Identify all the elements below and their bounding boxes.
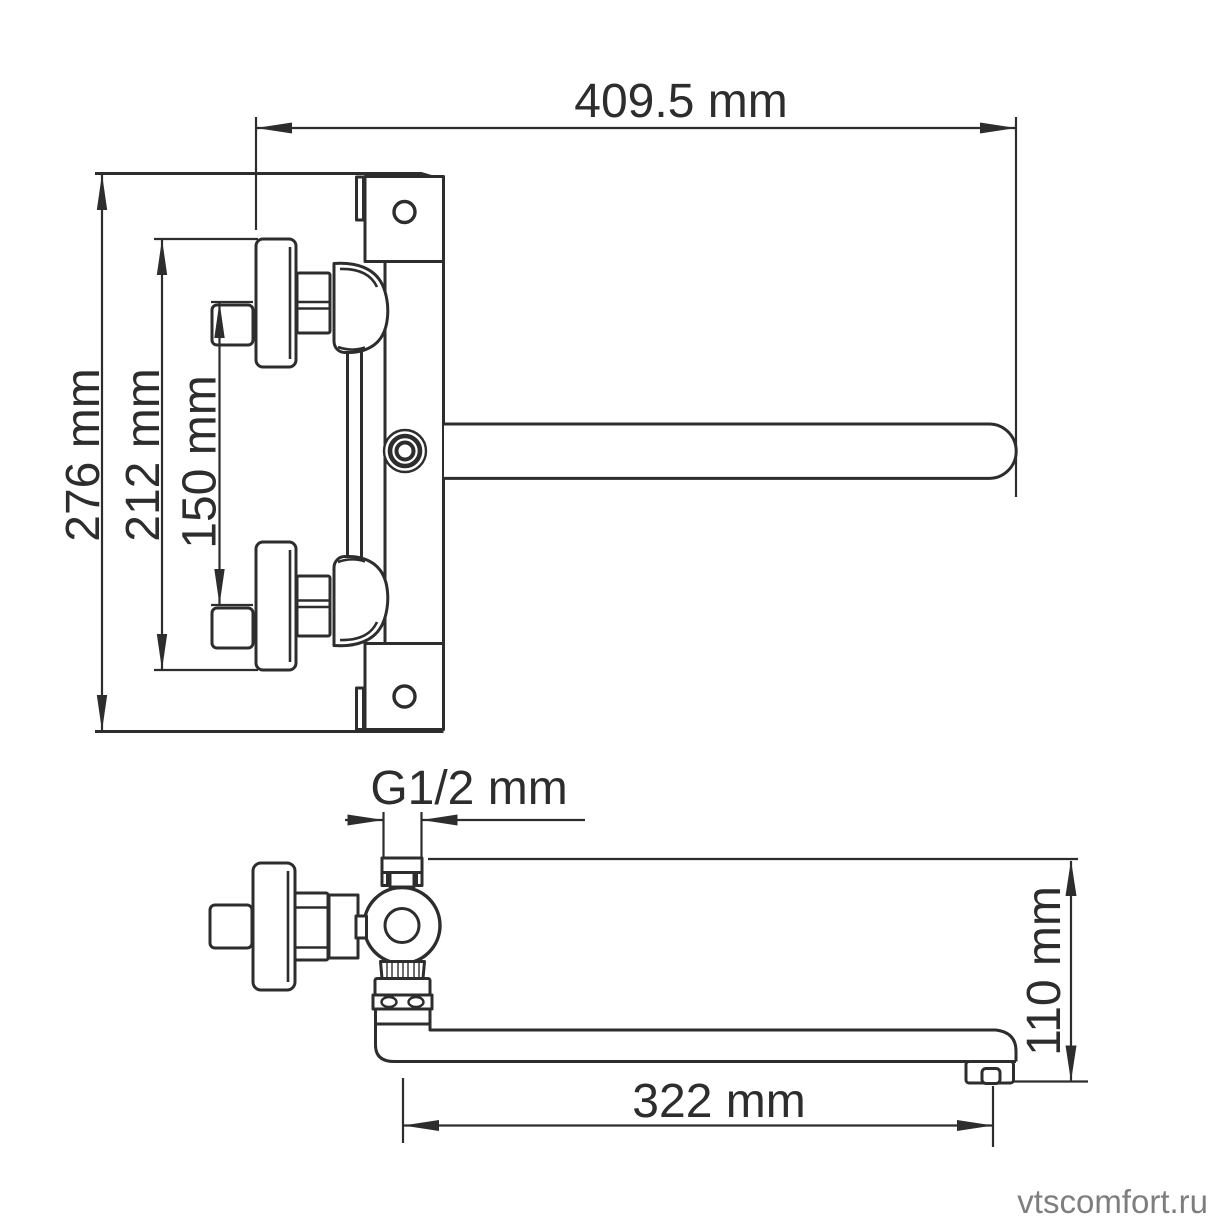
nipple-flange-left: [382, 873, 388, 886]
spout-collar: [376, 1009, 431, 1024]
center-screw: [384, 430, 426, 472]
nipple-cap: [382, 858, 422, 873]
arrowhead-right: [422, 815, 458, 826]
dimension-spout-length-label: 322 mm: [632, 1075, 805, 1128]
wall-bracket-bottom: [357, 644, 444, 730]
dimension-connection-spacing-label: 150 mm: [174, 375, 227, 548]
escutcheon: [334, 263, 388, 352]
nipple-thread: [390, 873, 414, 888]
arrowhead-bottom: [97, 695, 107, 731]
dimension-thread-size-label: G1/2 mm: [370, 762, 567, 815]
dimension-overall-width-label: 409.5 mm: [574, 75, 787, 128]
escutcheon: [334, 557, 388, 646]
square-connection-nut: [210, 905, 252, 948]
top-view: 409.5 mm 276 mm 212 mm 150 mm: [57, 75, 1016, 732]
hose-nipple: [382, 858, 422, 887]
square-connection-nut: [212, 608, 253, 648]
wall-bracket-top: [357, 177, 444, 262]
nipple-flange-right: [417, 873, 423, 886]
aerator: [982, 1069, 1000, 1084]
bracket-tab: [357, 177, 364, 220]
arrowhead-left: [256, 123, 292, 134]
arrowhead-top: [157, 239, 167, 275]
spout-top-contour: [430, 1024, 1016, 1062]
dimension-spout-height-label: 110 mm: [1018, 886, 1071, 1056]
dimension-spout-length: 322 mm: [403, 1075, 993, 1147]
dimension-handle-span-label: 212 mm: [117, 368, 170, 541]
hex-nut: [295, 893, 328, 960]
dimension-thread-size: G1/2 mm: [345, 762, 585, 858]
arrowhead-bottom: [214, 569, 224, 605]
dimension-spout-height: 110 mm: [1014, 860, 1088, 1082]
valve-side-parts: [210, 863, 367, 990]
spout-joint-stack: [373, 962, 432, 1025]
arrowhead-left: [403, 1120, 439, 1131]
arrowhead-right: [980, 123, 1016, 134]
body-block: [329, 895, 358, 958]
joint-flange: [375, 979, 430, 996]
dimension-connection-spacing: 150 mm: [174, 302, 254, 605]
arrowhead-left: [348, 815, 384, 826]
valve-bore-circle: [385, 909, 419, 943]
dimension-overall-height: 276 mm: [57, 174, 110, 731]
bracket-screw-hole: [394, 202, 415, 223]
arrowhead-top: [97, 174, 107, 210]
bracket-screw-hole: [394, 686, 415, 707]
arrowhead-right: [957, 1120, 993, 1131]
body-tab: [356, 916, 367, 938]
thread-lines: [387, 963, 419, 977]
side-view: G1/2 mm 110 mm 322 mm: [210, 762, 1088, 1147]
watermark: vtscomfort.ru: [1017, 1183, 1208, 1220]
arrowhead-bottom: [157, 634, 167, 670]
extension-lines: [384, 812, 422, 858]
faucet-dimension-drawing: 409.5 mm 276 mm 212 mm 150 mm: [0, 0, 1222, 1222]
dimension-overall-height-label: 276 mm: [57, 368, 110, 541]
bracket-tab: [357, 688, 364, 730]
drawing-canvas: 409.5 mm 276 mm 212 mm 150 mm: [0, 0, 1222, 1222]
spout-top-view: [444, 424, 1016, 478]
